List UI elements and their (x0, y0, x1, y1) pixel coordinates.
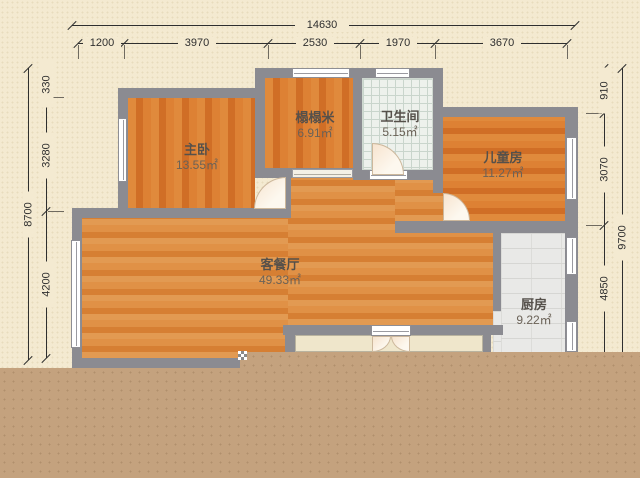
room-living-floor[interactable] (82, 218, 288, 358)
dim-right-seg-label: 3070 (599, 147, 612, 193)
wall[interactable] (255, 68, 265, 178)
dim-right-total-line (622, 68, 623, 352)
room-tatami-floor[interactable] (265, 78, 353, 168)
wall[interactable] (118, 88, 265, 98)
dim-left-seg-label: 3280 (41, 133, 54, 179)
window[interactable] (118, 118, 127, 182)
window[interactable] (566, 137, 577, 200)
dim-witness (586, 225, 602, 226)
dim-right-total-label: 9700 (617, 215, 630, 261)
wall[interactable] (72, 208, 291, 218)
room-living-floor[interactable] (288, 178, 395, 325)
door-balcony-frame[interactable] (371, 325, 411, 336)
dim-witness (124, 45, 125, 59)
floorplan-canvas: 14630 1200 3970 2530 1970 3670 8700 330 … (0, 0, 640, 478)
wall[interactable] (395, 221, 578, 233)
dim-top-total-label: 14630 (295, 19, 349, 32)
wall[interactable] (483, 335, 491, 352)
dim-witness (268, 45, 269, 59)
wall[interactable] (353, 78, 362, 178)
dim-top-seg-label: 3670 (483, 37, 521, 50)
room-master-floor[interactable] (128, 98, 255, 208)
wall[interactable] (433, 107, 578, 117)
dim-left-seg-line (46, 70, 47, 358)
dim-left-seg-label: 330 (41, 62, 54, 108)
dim-top-seg-label: 1200 (83, 37, 121, 50)
dim-witness (48, 211, 64, 212)
wall[interactable] (72, 358, 248, 368)
window[interactable] (71, 240, 81, 348)
unrendered-overlay (0, 368, 640, 478)
window[interactable] (292, 68, 350, 78)
door-master-swing[interactable] (254, 177, 286, 209)
dim-right-seg-label: 4850 (599, 266, 612, 312)
dim-witness (567, 45, 568, 59)
dim-left-seg-label: 4200 (41, 262, 54, 308)
dim-witness (360, 45, 361, 59)
wall[interactable] (433, 68, 443, 193)
door-tatami-sliding[interactable] (292, 169, 353, 178)
dim-top-seg-label: 2530 (296, 37, 334, 50)
wall[interactable] (285, 335, 295, 352)
window[interactable] (566, 321, 577, 352)
window[interactable] (375, 68, 410, 78)
room-kitchen-floor[interactable] (501, 233, 565, 353)
dim-witness (435, 45, 436, 59)
room-living-floor[interactable] (395, 233, 501, 325)
transparency-checker-icon (238, 351, 247, 360)
window[interactable] (566, 237, 577, 275)
dim-top-seg-label: 3970 (178, 37, 216, 50)
wall[interactable] (493, 233, 501, 311)
dim-witness (78, 45, 79, 59)
dim-top-seg-label: 1970 (379, 37, 417, 50)
dim-left-total-label: 8700 (23, 192, 36, 238)
dim-right-seg-label: 910 (599, 68, 612, 114)
